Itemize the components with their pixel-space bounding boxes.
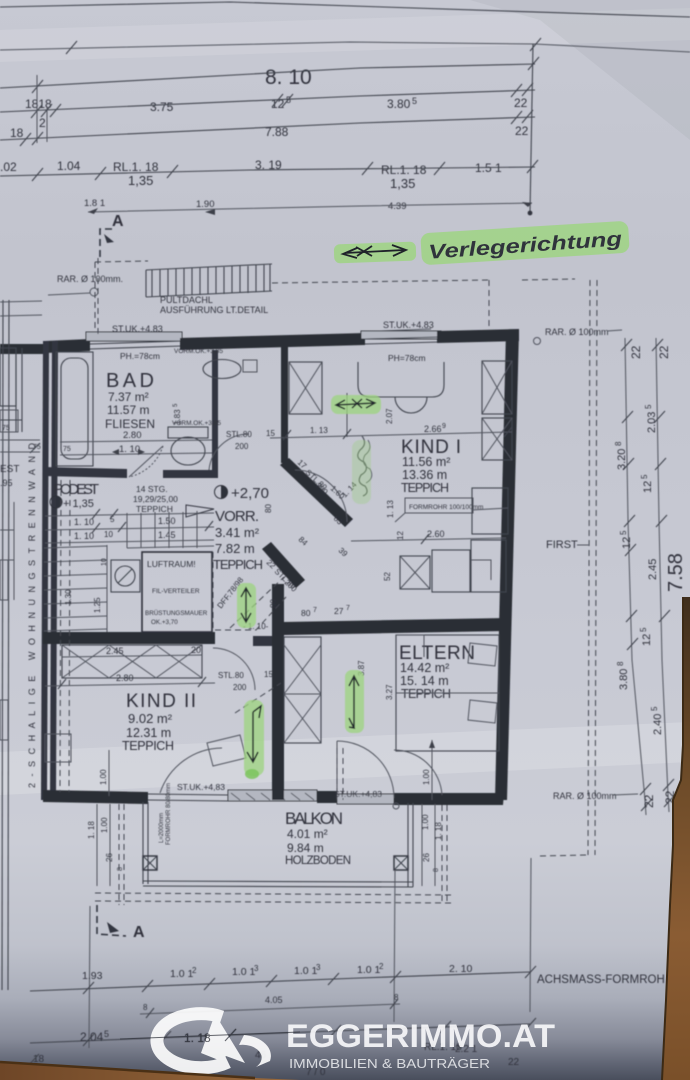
svg-text:PODEST: PODEST: [53, 481, 99, 498]
svg-text:1. 18: 1. 18: [87, 821, 96, 839]
svg-text:A: A: [112, 213, 124, 230]
svg-text:2.80: 2.80: [116, 673, 134, 683]
svg-text:2: 2: [379, 962, 384, 971]
svg-text:RAR. Ø 100mm.: RAR. Ø 100mm.: [57, 274, 123, 284]
svg-text:PH=78cm: PH=78cm: [388, 353, 426, 363]
svg-text:1.0 1: 1.0 1: [294, 965, 318, 977]
svg-text:1.04: 1.04: [57, 159, 81, 173]
svg-text:FIL-VERTEILER: FIL-VERTEILER: [152, 588, 200, 595]
svg-text:5: 5: [412, 96, 417, 106]
svg-text:1. 10: 1. 10: [74, 517, 94, 527]
svg-text:2.60: 2.60: [427, 529, 445, 539]
svg-text:1.00: 1.00: [100, 817, 109, 833]
svg-text:26: 26: [105, 853, 114, 862]
svg-text:3.27: 3.27: [385, 684, 394, 700]
svg-text:.95: .95: [0, 478, 13, 488]
svg-text:27: 27: [334, 606, 344, 616]
svg-text:3: 3: [254, 964, 259, 973]
svg-text:A: A: [133, 924, 145, 941]
svg-text:ST.UK.+4,83: ST.UK.+4,83: [177, 782, 225, 792]
svg-text:8: 8: [614, 441, 623, 446]
svg-text:2.40: 2.40: [652, 714, 664, 735]
svg-text:3.41 m²: 3.41 m²: [215, 525, 260, 540]
svg-text:VORR.: VORR.: [215, 508, 259, 525]
svg-text:8: 8: [433, 868, 440, 872]
svg-text:22: 22: [508, 1057, 520, 1068]
svg-text:BAD: BAD: [106, 370, 154, 392]
svg-text:PH.=78cm: PH.=78cm: [120, 351, 160, 361]
svg-text:5: 5: [104, 1029, 109, 1039]
svg-text:LUFTRAUM!: LUFTRAUM!: [147, 559, 196, 569]
svg-text:VORM.OK.+3,85: VORM.OK.+3,85: [174, 348, 223, 355]
svg-text:12: 12: [641, 634, 653, 646]
svg-text:ST.UK.+4,83: ST.UK.+4,83: [334, 789, 382, 799]
svg-text:12: 12: [396, 531, 405, 540]
svg-text:1.00: 1.00: [422, 769, 431, 785]
svg-text:80: 80: [264, 504, 273, 513]
svg-text:22: 22: [514, 96, 528, 110]
svg-text:RAR. Ø 100mm: RAR. Ø 100mm: [545, 327, 609, 337]
svg-text:15. 14 m: 15. 14 m: [400, 674, 449, 688]
svg-text:HOLZBODEN: HOLZBODEN: [285, 855, 351, 867]
svg-text:200: 200: [233, 683, 247, 692]
svg-text:2: 2: [39, 116, 46, 130]
svg-text:TEPPICH: TEPPICH: [401, 481, 449, 495]
svg-text:7: 7: [346, 605, 350, 612]
svg-text:3: 3: [316, 963, 321, 972]
svg-text:1.90: 1.90: [196, 199, 215, 210]
svg-text:75: 75: [33, 444, 41, 451]
svg-text:2: 2: [192, 966, 197, 975]
svg-text:2.66: 2.66: [424, 424, 442, 434]
svg-text:AUSFÜHRUNG LT.DETAIL: AUSFÜHRUNG LT.DETAIL: [160, 305, 268, 315]
svg-text:5: 5: [619, 530, 628, 535]
svg-text:IMMOBILIEN & BAUTRÄGER: IMMOBILIEN & BAUTRÄGER: [289, 1057, 490, 1071]
svg-text:1. 13: 1. 13: [310, 426, 328, 435]
svg-text:1. 13: 1. 13: [386, 500, 395, 518]
svg-text:RL.1. 18: RL.1. 18: [381, 163, 427, 177]
svg-text:8: 8: [143, 1003, 148, 1012]
svg-text:8: 8: [616, 661, 625, 666]
svg-text:EST: EST: [0, 464, 19, 475]
svg-text:5: 5: [644, 404, 653, 409]
svg-text:12.31 m: 12.31 m: [126, 726, 171, 740]
svg-text:RAR. Ø 100mm: RAR. Ø 100mm: [553, 791, 617, 801]
svg-text:1.30: 1.30: [64, 589, 73, 605]
svg-text:5: 5: [650, 706, 659, 711]
svg-text:2.80: 2.80: [123, 430, 142, 441]
svg-text:1.0 1: 1.0 1: [357, 964, 381, 976]
svg-text:22: 22: [629, 345, 643, 359]
svg-text:1.50: 1.50: [158, 516, 176, 526]
svg-text:12: 12: [642, 481, 654, 493]
svg-text:1. 18: 1. 18: [434, 822, 443, 840]
svg-text:FORMROHR 80/80mm: FORMROHR 80/80mm: [166, 783, 172, 845]
svg-text:1,35: 1,35: [390, 176, 415, 191]
svg-text:1.00: 1.00: [99, 769, 108, 785]
svg-text:TEPPICH: TEPPICH: [213, 557, 263, 572]
svg-text:4.39: 4.39: [388, 201, 407, 212]
svg-text:22: 22: [515, 124, 529, 138]
svg-text:75: 75: [2, 425, 10, 432]
svg-text:1. 10: 1. 10: [119, 444, 140, 455]
svg-text:9: 9: [442, 423, 446, 430]
svg-text:+ 1,35: + 1,35: [63, 498, 94, 510]
svg-text:7.82 m: 7.82 m: [215, 541, 255, 556]
svg-text:5: 5: [639, 627, 648, 632]
svg-text:15: 15: [266, 429, 275, 438]
svg-text:TEPPICH: TEPPICH: [401, 687, 451, 701]
svg-text:STL.80: STL.80: [226, 430, 252, 439]
svg-text:TEPPICH: TEPPICH: [122, 739, 174, 753]
svg-text:+2,70: +2,70: [231, 485, 269, 502]
svg-text:1.0 1: 1.0 1: [170, 968, 194, 980]
svg-text:11.56 m²: 11.56 m²: [402, 455, 450, 469]
svg-text:9.84 m: 9.84 m: [287, 841, 324, 855]
svg-text:22: 22: [657, 345, 671, 359]
svg-text:3.75: 3.75: [150, 100, 174, 114]
svg-text:75: 75: [63, 446, 71, 453]
svg-text:L=2000mm: L=2000mm: [159, 813, 165, 843]
svg-text:4.01 m²: 4.01 m²: [287, 827, 328, 841]
svg-text:2.07: 2.07: [385, 408, 394, 424]
svg-text:1.00: 1.00: [421, 814, 430, 830]
svg-text:3.80: 3.80: [618, 669, 630, 690]
svg-text:5: 5: [640, 474, 649, 479]
svg-text:STL.80: STL.80: [218, 671, 244, 680]
svg-text:1.93: 1.93: [82, 970, 103, 982]
svg-text:1.25: 1.25: [93, 597, 102, 613]
svg-text:1. 18: 1. 18: [184, 1031, 211, 1045]
svg-text:9.02 m²: 9.02 m²: [128, 711, 173, 726]
svg-text:52: 52: [383, 572, 392, 581]
svg-text:10: 10: [104, 530, 113, 539]
svg-text:BRÜSTUNGSMAUER: BRÜSTUNGSMAUER: [145, 609, 208, 617]
svg-text:BALKON: BALKON: [285, 809, 343, 828]
svg-text:18: 18: [10, 126, 24, 140]
svg-text:10: 10: [101, 558, 108, 566]
svg-text:OK.+3,70: OK.+3,70: [151, 619, 178, 626]
svg-text:1.45: 1.45: [158, 530, 176, 540]
svg-text:14 STG.: 14 STG.: [136, 484, 168, 494]
svg-text:.02: .02: [0, 160, 17, 174]
svg-text:7.58: 7.58: [665, 553, 687, 592]
svg-text:2.03: 2.03: [646, 412, 658, 433]
svg-text:12: 12: [621, 537, 633, 549]
svg-text:22: 22: [642, 794, 656, 808]
svg-text:80: 80: [269, 599, 278, 608]
svg-text:7.37 m²: 7.37 m²: [108, 390, 149, 404]
svg-text:1.8 1: 1.8 1: [84, 198, 105, 209]
svg-text:3.20: 3.20: [616, 449, 628, 470]
svg-text:80: 80: [301, 608, 311, 618]
svg-text:11.57 m: 11.57 m: [107, 403, 149, 417]
svg-text:VORM.OK.+3,85: VORM.OK.+3,85: [172, 420, 221, 427]
svg-text:200: 200: [235, 442, 249, 451]
svg-text:26: 26: [422, 853, 431, 862]
svg-text:3.80: 3.80: [387, 97, 411, 111]
svg-text:19,29/25,00: 19,29/25,00: [133, 494, 178, 504]
svg-text:1. 10: 1. 10: [74, 531, 94, 541]
svg-text:PULTDACHL: PULTDACHL: [160, 295, 213, 305]
svg-text:8: 8: [117, 867, 124, 871]
svg-text:13.36 m: 13.36 m: [402, 468, 447, 482]
svg-text:2. 10: 2. 10: [449, 963, 473, 975]
svg-text:2.45: 2.45: [106, 646, 124, 656]
svg-text:15: 15: [264, 670, 273, 679]
svg-text:EGGERIMMO.AT: EGGERIMMO.AT: [286, 1018, 555, 1054]
svg-text:2.45: 2.45: [647, 559, 659, 580]
svg-text:FLIESEN: FLIESEN: [105, 417, 155, 431]
svg-text:7: 7: [313, 607, 317, 614]
svg-text:8. 10: 8. 10: [265, 66, 312, 89]
svg-text:ACHSMASS-FORMROH: ACHSMASS-FORMROH: [537, 974, 665, 986]
svg-text:2.04: 2.04: [80, 1030, 104, 1044]
svg-text:TEPPICH: TEPPICH: [136, 504, 173, 514]
svg-text:14.42 m²: 14.42 m²: [400, 661, 449, 675]
svg-text:20: 20: [191, 645, 201, 655]
svg-text:FIRST: FIRST: [546, 539, 578, 551]
svg-text:1,35: 1,35: [128, 173, 153, 188]
svg-text:4.05: 4.05: [265, 995, 283, 1005]
svg-text:ST.UK.+4.83: ST.UK.+4.83: [383, 320, 434, 330]
svg-text:1.0 1: 1.0 1: [232, 966, 256, 978]
